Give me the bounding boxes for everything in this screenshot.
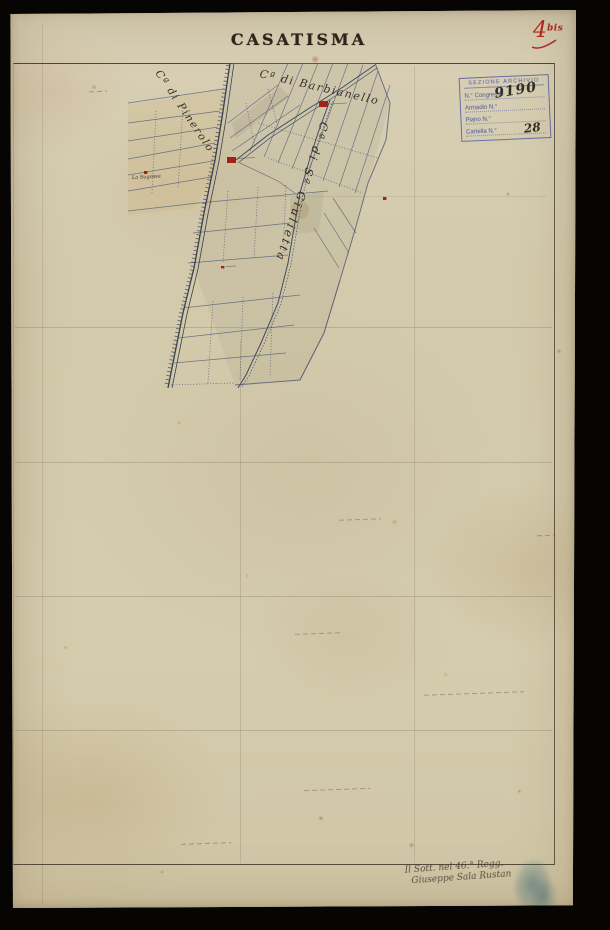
fold-line-vertical — [240, 340, 241, 863]
fold-line-horizontal — [15, 462, 552, 463]
sheet-number: 4bis — [533, 18, 563, 43]
building-symbol-small — [221, 266, 224, 268]
sheet-number-flourish — [530, 38, 560, 50]
stamp-row-label: Piano N.° — [465, 117, 491, 124]
page-title: CASATISMA — [169, 30, 429, 49]
stamp-row-label: Cartella N.° — [466, 128, 497, 135]
cadastral-map-svg: Cª di Pinerolo Cª di Barbianello Cª di S… — [128, 63, 398, 388]
building-symbol-small — [383, 197, 386, 200]
fold-line-vertical — [414, 66, 415, 863]
stamp-handwritten-folder: 28 — [523, 120, 541, 136]
pencil-annotation — [537, 534, 555, 538]
fold-line-vertical — [42, 24, 43, 904]
fold-line-horizontal — [15, 730, 552, 731]
sheet-number-suffix: bis — [547, 24, 563, 34]
pencil-annotation — [89, 90, 107, 94]
building-symbol — [319, 101, 328, 107]
building-symbol — [227, 157, 236, 163]
ink-stamp-blob — [502, 848, 574, 930]
cadastral-map-drawing: Cª di Pinerolo Cª di Barbianello Cª di S… — [128, 63, 398, 388]
map-sheet-paper: CASATISMA 4bis SEZIONE ARCHIVIO N.° Cong… — [9, 10, 576, 908]
archive-stamp: SEZIONE ARCHIVIO N.° Congresso Armadio N… — [459, 74, 552, 142]
photographed-map-sheet: { "title": "CASATISMA", "sheet_mark": { … — [0, 0, 610, 919]
fold-line-horizontal — [15, 596, 552, 597]
